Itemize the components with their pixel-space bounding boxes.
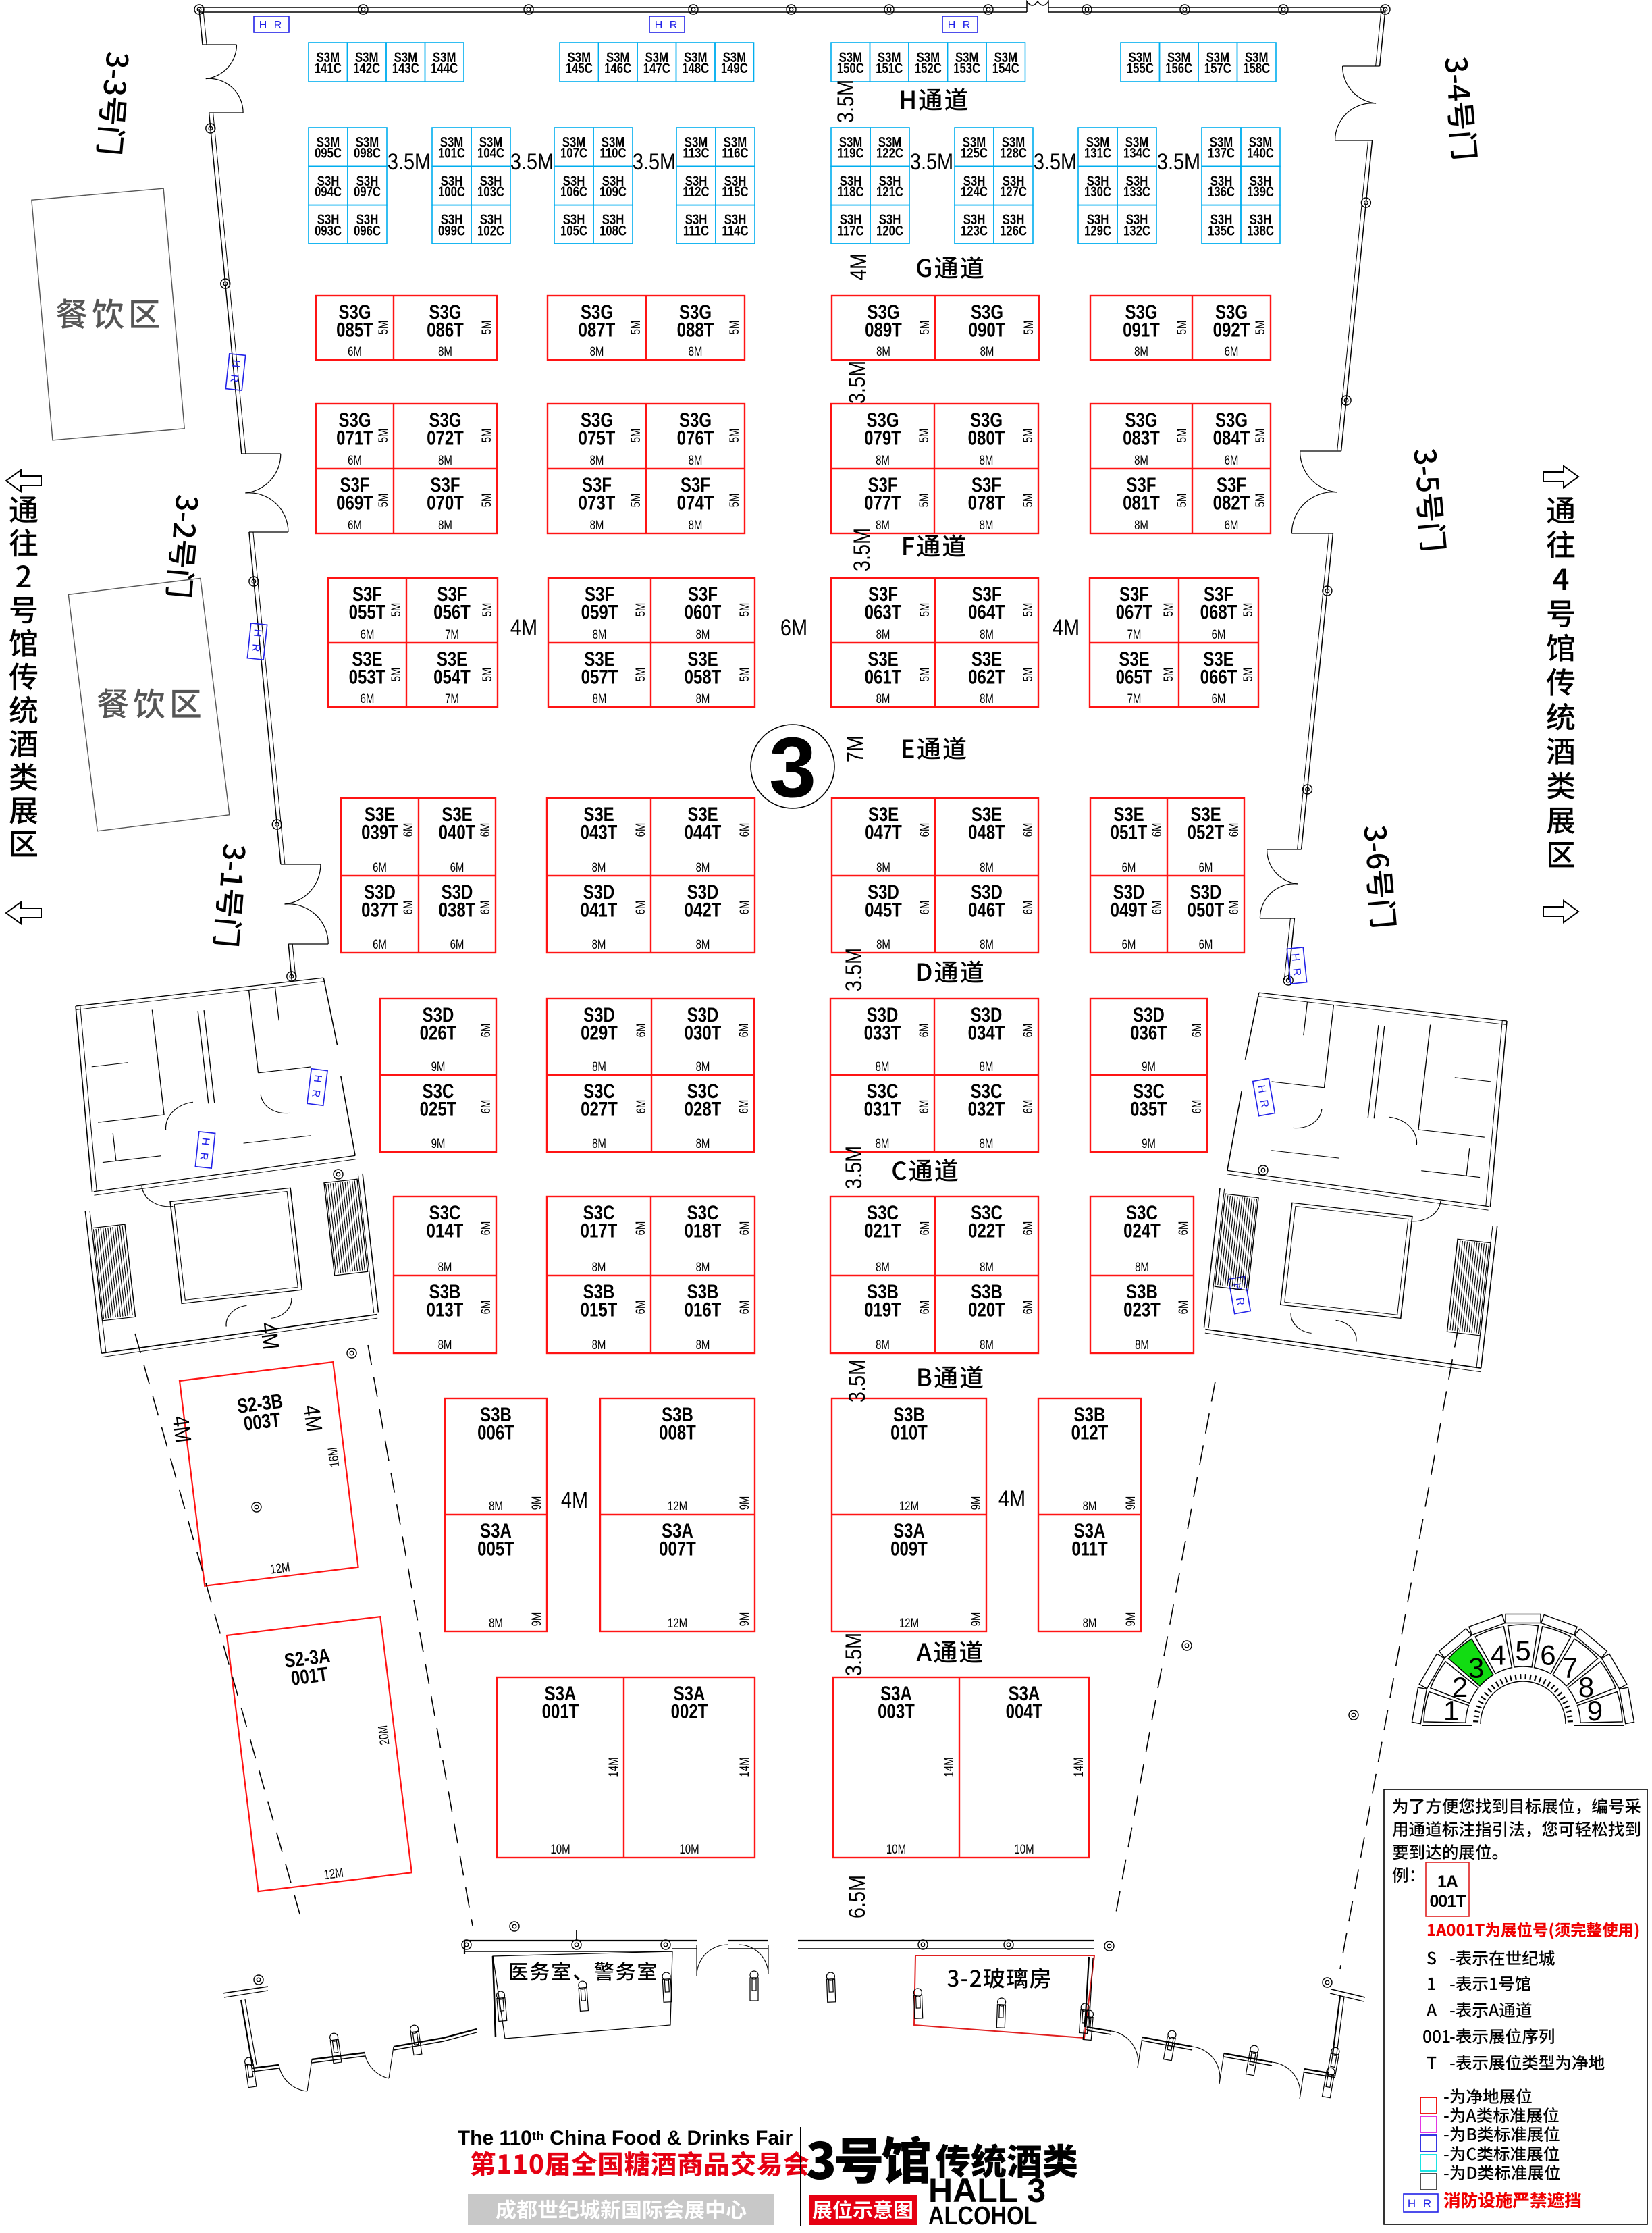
svg-text:003T: 003T	[242, 1408, 282, 1436]
svg-text:6M: 6M	[400, 901, 415, 915]
svg-text:3.5M: 3.5M	[841, 1146, 867, 1189]
svg-text:128C: 128C	[1000, 146, 1027, 161]
svg-text:149C: 149C	[721, 61, 748, 76]
svg-text:6M: 6M	[1020, 1024, 1035, 1038]
svg-text:116C: 116C	[722, 146, 748, 161]
svg-text:098C: 098C	[354, 146, 381, 161]
svg-text:014T: 014T	[427, 1219, 464, 1242]
svg-text:3.5M: 3.5M	[1157, 149, 1200, 175]
svg-text:7M: 7M	[445, 627, 459, 641]
svg-text:108C: 108C	[599, 223, 627, 238]
svg-text:109C: 109C	[599, 184, 627, 200]
svg-text:6M: 6M	[1226, 823, 1241, 837]
svg-text:10M: 10M	[550, 1841, 570, 1856]
svg-text:8M: 8M	[696, 1259, 710, 1274]
svg-text:5M: 5M	[726, 429, 741, 443]
svg-text:6M: 6M	[633, 1301, 647, 1315]
svg-text:066T: 066T	[1200, 665, 1237, 688]
svg-text:8M: 8M	[438, 452, 452, 467]
svg-text:5M: 5M	[375, 494, 390, 508]
svg-text:042T: 042T	[685, 898, 722, 921]
svg-text:5M: 5M	[726, 321, 741, 335]
svg-text:8M: 8M	[876, 452, 890, 467]
svg-text:102C: 102C	[477, 223, 504, 238]
svg-text:018T: 018T	[685, 1219, 722, 1242]
svg-text:088T: 088T	[677, 318, 714, 341]
svg-text:6M: 6M	[1020, 901, 1035, 915]
svg-text:6M: 6M	[633, 1100, 648, 1114]
svg-text:8M: 8M	[489, 1498, 503, 1513]
svg-text:074T: 074T	[677, 491, 714, 514]
svg-text:5M: 5M	[1020, 668, 1035, 682]
svg-text:6M: 6M	[361, 627, 375, 641]
svg-text:4M: 4M	[167, 1414, 196, 1444]
svg-text:14M: 14M	[737, 1757, 751, 1777]
svg-text:091T: 091T	[1123, 318, 1160, 341]
svg-text:5M: 5M	[1020, 494, 1035, 508]
svg-text:6M: 6M	[633, 1024, 648, 1038]
svg-text:The 110th China Food & Drinks: The 110th China Food & Drinks Fair	[458, 2127, 793, 2149]
svg-text:8M: 8M	[876, 937, 890, 951]
svg-text:105C: 105C	[560, 223, 587, 238]
svg-text:059T: 059T	[581, 600, 618, 623]
svg-text:060T: 060T	[685, 600, 722, 623]
svg-text:3.5M: 3.5M	[633, 149, 676, 175]
svg-text:082T: 082T	[1213, 491, 1250, 514]
svg-text:141C: 141C	[315, 61, 342, 76]
svg-text:6M: 6M	[1020, 1100, 1035, 1114]
svg-text:6: 6	[1540, 1639, 1555, 1671]
svg-text:061T: 061T	[865, 665, 902, 688]
svg-text:4M: 4M	[561, 1487, 588, 1513]
svg-text:5M: 5M	[917, 668, 932, 682]
svg-text:3.5M: 3.5M	[910, 149, 953, 175]
svg-text:7M: 7M	[1127, 627, 1142, 641]
svg-text:075T: 075T	[579, 426, 616, 449]
svg-text:6M: 6M	[1122, 937, 1136, 951]
svg-text:12M: 12M	[668, 1615, 687, 1630]
svg-text:6M: 6M	[737, 1221, 751, 1236]
svg-text:9M: 9M	[529, 1496, 543, 1510]
svg-text:6M: 6M	[1149, 823, 1164, 837]
svg-text:083T: 083T	[1123, 426, 1160, 449]
svg-text:033T: 033T	[864, 1021, 901, 1044]
svg-text:5M: 5M	[628, 494, 643, 508]
svg-text:072T: 072T	[427, 426, 464, 449]
svg-text:8M: 8M	[689, 452, 703, 467]
svg-text:7M: 7M	[1127, 691, 1142, 706]
svg-text:090T: 090T	[969, 318, 1006, 341]
svg-text:5M: 5M	[917, 603, 932, 617]
svg-text:6M: 6M	[1199, 860, 1213, 874]
svg-text:064T: 064T	[968, 600, 1005, 623]
svg-text:5M: 5M	[628, 321, 643, 335]
svg-text:9M: 9M	[1142, 1136, 1156, 1151]
svg-text:8M: 8M	[696, 937, 710, 951]
svg-text:077T: 077T	[864, 491, 901, 514]
svg-text:8M: 8M	[980, 937, 994, 951]
svg-text:039T: 039T	[361, 820, 398, 843]
svg-text:145C: 145C	[566, 61, 593, 76]
svg-text:040T: 040T	[439, 820, 476, 843]
svg-text:146C: 146C	[604, 61, 631, 76]
svg-text:003T: 003T	[878, 1700, 915, 1723]
svg-text:5M: 5M	[479, 494, 494, 508]
svg-text:143C: 143C	[392, 61, 419, 76]
svg-text:030T: 030T	[685, 1021, 722, 1044]
svg-text:6M: 6M	[1020, 1221, 1035, 1236]
svg-text:10M: 10M	[679, 1841, 699, 1856]
svg-text:6M: 6M	[478, 1301, 493, 1315]
svg-text:3.5M: 3.5M	[841, 1633, 867, 1676]
svg-text:6M: 6M	[1212, 627, 1226, 641]
svg-text:6M: 6M	[1226, 901, 1241, 915]
svg-text:147C: 147C	[643, 61, 670, 76]
svg-text:106C: 106C	[560, 184, 587, 200]
svg-text:9: 9	[1587, 1695, 1603, 1727]
svg-text:5M: 5M	[1252, 429, 1267, 443]
svg-text:127C: 127C	[1000, 184, 1027, 200]
svg-text:8M: 8M	[876, 1136, 890, 1151]
svg-text:096C: 096C	[354, 223, 381, 238]
svg-text:001T: 001T	[1430, 1892, 1466, 1911]
svg-text:6M: 6M	[737, 1301, 751, 1315]
svg-text:063T: 063T	[865, 600, 902, 623]
svg-text:144C: 144C	[431, 61, 458, 76]
svg-text:085T: 085T	[336, 318, 373, 341]
svg-text:009T: 009T	[890, 1537, 928, 1560]
svg-text:134C: 134C	[1123, 146, 1150, 161]
svg-text:123C: 123C	[961, 223, 988, 238]
svg-text:H R: H R	[1408, 2197, 1433, 2210]
svg-text:5M: 5M	[375, 429, 390, 443]
svg-text:031T: 031T	[864, 1097, 901, 1120]
svg-text:9M: 9M	[529, 1612, 543, 1627]
svg-text:6M: 6M	[1189, 1024, 1204, 1038]
svg-text:133C: 133C	[1123, 184, 1150, 200]
svg-text:047T: 047T	[865, 820, 902, 843]
svg-text:148C: 148C	[682, 61, 709, 76]
svg-text:019T: 019T	[864, 1298, 901, 1321]
svg-text:6M: 6M	[361, 691, 375, 706]
svg-text:5M: 5M	[1252, 494, 1267, 508]
svg-text:5M: 5M	[1174, 494, 1189, 508]
svg-text:028T: 028T	[685, 1097, 722, 1120]
svg-text:3.5M: 3.5M	[388, 149, 431, 175]
svg-text:8M: 8M	[590, 517, 604, 532]
svg-text:8M: 8M	[592, 1136, 606, 1151]
svg-text:8M: 8M	[1134, 452, 1148, 467]
svg-text:8M: 8M	[689, 517, 703, 532]
svg-text:8M: 8M	[696, 627, 710, 641]
svg-text:6M: 6M	[1175, 1301, 1190, 1315]
svg-text:5M: 5M	[633, 668, 647, 682]
svg-text:094C: 094C	[315, 184, 342, 200]
svg-text:6M: 6M	[1225, 344, 1239, 359]
svg-text:6M: 6M	[400, 823, 415, 837]
svg-text:8M: 8M	[980, 452, 994, 467]
svg-text:152C: 152C	[915, 61, 942, 76]
svg-text:130C: 130C	[1084, 184, 1111, 200]
svg-text:101C: 101C	[438, 146, 465, 161]
svg-text:12M: 12M	[323, 1865, 344, 1883]
svg-text:8M: 8M	[592, 937, 606, 951]
svg-text:126C: 126C	[1000, 223, 1027, 238]
svg-text:8M: 8M	[592, 1337, 606, 1352]
svg-text:6M: 6M	[348, 452, 362, 467]
svg-text:8M: 8M	[1135, 1259, 1149, 1274]
svg-text:8M: 8M	[980, 344, 994, 359]
svg-text:3.5M: 3.5M	[510, 149, 554, 175]
svg-text:3.5M: 3.5M	[844, 1359, 870, 1402]
svg-text:8M: 8M	[980, 1136, 994, 1151]
svg-text:006T: 006T	[477, 1421, 514, 1444]
svg-text:156C: 156C	[1165, 61, 1192, 76]
svg-text:8M: 8M	[1083, 1498, 1097, 1513]
svg-text:6.5M: 6.5M	[844, 1875, 870, 1918]
svg-text:1A: 1A	[1437, 1872, 1458, 1891]
svg-text:078T: 078T	[968, 491, 1005, 514]
svg-text:8M: 8M	[696, 860, 710, 874]
svg-text:8M: 8M	[876, 517, 890, 532]
svg-text:8M: 8M	[876, 627, 890, 641]
svg-text:107C: 107C	[560, 146, 587, 161]
svg-text:010T: 010T	[890, 1421, 928, 1444]
svg-text:002T: 002T	[671, 1700, 708, 1723]
svg-text:058T: 058T	[685, 665, 722, 688]
svg-text:5M: 5M	[1174, 321, 1189, 335]
svg-text:6M: 6M	[917, 901, 932, 915]
svg-text:3.5M: 3.5M	[841, 948, 867, 991]
svg-text:6M: 6M	[373, 937, 387, 951]
svg-text:6M: 6M	[736, 1024, 751, 1038]
svg-text:12M: 12M	[899, 1615, 919, 1630]
svg-text:8M: 8M	[438, 344, 452, 359]
svg-text:087T: 087T	[579, 318, 616, 341]
svg-text:150C: 150C	[837, 61, 864, 76]
svg-text:9M: 9M	[431, 1136, 446, 1151]
svg-text:5M: 5M	[1161, 603, 1175, 617]
svg-text:6M: 6M	[917, 1301, 932, 1315]
svg-text:017T: 017T	[581, 1219, 618, 1242]
svg-text:6M: 6M	[1122, 860, 1136, 874]
svg-text:065T: 065T	[1116, 665, 1153, 688]
svg-text:9M: 9M	[1123, 1612, 1138, 1627]
svg-text:124C: 124C	[961, 184, 988, 200]
svg-text:6M: 6M	[917, 1221, 932, 1236]
svg-text:099C: 099C	[438, 223, 465, 238]
svg-text:5M: 5M	[726, 494, 741, 508]
svg-text:073T: 073T	[579, 491, 616, 514]
svg-text:8M: 8M	[489, 1615, 503, 1630]
svg-text:6M: 6M	[917, 823, 932, 837]
svg-text:016T: 016T	[685, 1298, 722, 1321]
svg-text:8M: 8M	[696, 1059, 710, 1074]
svg-text:8M: 8M	[689, 344, 703, 359]
svg-text:6M: 6M	[477, 901, 492, 915]
svg-text:12M: 12M	[269, 1559, 291, 1577]
svg-text:8M: 8M	[592, 1259, 606, 1274]
svg-text:071T: 071T	[336, 426, 373, 449]
svg-text:8M: 8M	[1135, 1337, 1149, 1352]
svg-text:100C: 100C	[438, 184, 465, 200]
svg-text:9M: 9M	[431, 1059, 446, 1074]
svg-text:2: 2	[1452, 1671, 1468, 1703]
svg-text:049T: 049T	[1111, 898, 1148, 921]
svg-text:8M: 8M	[876, 1337, 890, 1352]
svg-text:4M: 4M	[298, 1403, 327, 1434]
svg-text:140C: 140C	[1247, 146, 1274, 161]
svg-text:14M: 14M	[1071, 1757, 1086, 1777]
svg-text:157C: 157C	[1204, 61, 1231, 76]
svg-text:8M: 8M	[980, 627, 994, 641]
svg-text:097C: 097C	[354, 184, 381, 200]
svg-text:8M: 8M	[876, 344, 890, 359]
svg-text:8M: 8M	[876, 860, 890, 874]
svg-text:089T: 089T	[865, 318, 902, 341]
svg-text:6M: 6M	[1212, 691, 1226, 706]
svg-text:050T: 050T	[1188, 898, 1225, 921]
svg-text:12M: 12M	[899, 1498, 919, 1513]
svg-text:007T: 007T	[659, 1537, 696, 1560]
svg-text:ALCOHOL: ALCOHOL	[928, 2201, 1037, 2230]
svg-text:6M: 6M	[1020, 1301, 1035, 1315]
svg-text:054T: 054T	[433, 665, 471, 688]
svg-text:001T: 001T	[290, 1662, 329, 1690]
svg-text:8M: 8M	[696, 691, 710, 706]
svg-text:062T: 062T	[968, 665, 1005, 688]
svg-text:9M: 9M	[737, 1496, 751, 1510]
svg-text:5M: 5M	[1020, 603, 1035, 617]
svg-text:6M: 6M	[478, 1221, 493, 1236]
svg-text:8M: 8M	[980, 691, 994, 706]
svg-text:5M: 5M	[917, 321, 932, 335]
svg-text:10M: 10M	[886, 1841, 906, 1856]
svg-text:142C: 142C	[353, 61, 380, 76]
svg-text:5M: 5M	[1240, 603, 1255, 617]
svg-text:086T: 086T	[427, 318, 464, 341]
svg-text:8M: 8M	[590, 344, 604, 359]
svg-text:154C: 154C	[992, 61, 1019, 76]
svg-text:056T: 056T	[433, 600, 471, 623]
svg-text:7: 7	[1562, 1652, 1578, 1683]
svg-text:046T: 046T	[968, 898, 1005, 921]
svg-text:8M: 8M	[438, 1259, 452, 1274]
svg-text:5M: 5M	[388, 603, 403, 617]
svg-text:12M: 12M	[668, 1498, 687, 1513]
svg-text:027T: 027T	[581, 1097, 618, 1120]
svg-text:135C: 135C	[1208, 223, 1235, 238]
svg-text:5M: 5M	[628, 429, 643, 443]
svg-text:5M: 5M	[1174, 429, 1189, 443]
svg-text:6M: 6M	[478, 1024, 493, 1038]
svg-text:044T: 044T	[685, 820, 722, 843]
svg-text:080T: 080T	[968, 426, 1005, 449]
svg-text:011T: 011T	[1071, 1537, 1108, 1560]
svg-text:7M: 7M	[842, 735, 868, 762]
svg-text:034T: 034T	[968, 1021, 1005, 1044]
svg-text:120C: 120C	[876, 223, 903, 238]
svg-text:14M: 14M	[941, 1757, 956, 1777]
svg-text:032T: 032T	[968, 1097, 1005, 1120]
svg-text:125C: 125C	[961, 146, 988, 161]
svg-text:029T: 029T	[581, 1021, 618, 1044]
svg-text:7M: 7M	[445, 691, 459, 706]
svg-text:8M: 8M	[980, 1337, 994, 1352]
svg-text:8M: 8M	[980, 860, 994, 874]
svg-text:8M: 8M	[593, 691, 607, 706]
svg-text:118C: 118C	[837, 184, 863, 200]
svg-text:079T: 079T	[864, 426, 901, 449]
svg-text:013T: 013T	[427, 1298, 464, 1321]
svg-text:8M: 8M	[1083, 1615, 1097, 1630]
svg-text:115C: 115C	[722, 184, 748, 200]
svg-text:153C: 153C	[953, 61, 980, 76]
svg-text:012T: 012T	[1071, 1421, 1109, 1444]
svg-text:6M: 6M	[780, 614, 807, 641]
svg-text:8M: 8M	[980, 1259, 994, 1274]
svg-text:3: 3	[769, 720, 816, 815]
svg-text:3.5M: 3.5M	[1034, 149, 1077, 175]
svg-text:021T: 021T	[864, 1219, 901, 1242]
svg-text:092T: 092T	[1213, 318, 1250, 341]
svg-text:5M: 5M	[1020, 429, 1035, 443]
svg-text:136C: 136C	[1208, 184, 1235, 200]
svg-text:6M: 6M	[737, 823, 751, 837]
svg-text:038T: 038T	[439, 898, 476, 921]
svg-text:067T: 067T	[1116, 600, 1153, 623]
svg-text:6M: 6M	[348, 344, 362, 359]
svg-text:131C: 131C	[1084, 146, 1111, 161]
svg-text:081T: 081T	[1123, 491, 1160, 514]
svg-text:6M: 6M	[633, 1221, 647, 1236]
svg-text:004T: 004T	[1006, 1700, 1043, 1723]
svg-text:9M: 9M	[1142, 1059, 1156, 1074]
svg-text:015T: 015T	[581, 1298, 618, 1321]
svg-text:001T: 001T	[542, 1700, 579, 1723]
svg-text:132C: 132C	[1123, 223, 1150, 238]
svg-text:H R: H R	[259, 20, 284, 31]
svg-text:5M: 5M	[737, 668, 751, 682]
svg-text:14M: 14M	[606, 1757, 620, 1777]
svg-text:008T: 008T	[659, 1421, 696, 1444]
svg-text:5M: 5M	[1021, 321, 1036, 335]
svg-text:5M: 5M	[916, 494, 931, 508]
svg-text:137C: 137C	[1208, 146, 1235, 161]
svg-text:111C: 111C	[683, 223, 709, 238]
svg-text:6M: 6M	[1149, 901, 1164, 915]
svg-text:9M: 9M	[1123, 1496, 1138, 1510]
svg-text:151C: 151C	[876, 61, 903, 76]
svg-text:9M: 9M	[968, 1496, 983, 1510]
svg-text:8M: 8M	[1134, 344, 1148, 359]
svg-text:8M: 8M	[1134, 517, 1148, 532]
svg-text:051T: 051T	[1111, 820, 1148, 843]
svg-text:5M: 5M	[1240, 668, 1255, 682]
svg-text:037T: 037T	[361, 898, 398, 921]
svg-text:16M: 16M	[325, 1446, 342, 1468]
svg-text:4M: 4M	[998, 1486, 1025, 1512]
svg-text:6M: 6M	[633, 823, 647, 837]
svg-text:119C: 119C	[837, 146, 863, 161]
svg-text:036T: 036T	[1130, 1021, 1167, 1044]
svg-text:6M: 6M	[1225, 452, 1239, 467]
svg-text:5M: 5M	[1252, 321, 1267, 335]
svg-text:023T: 023T	[1123, 1298, 1161, 1321]
svg-text:3.5M: 3.5M	[849, 528, 875, 571]
svg-text:8M: 8M	[438, 517, 452, 532]
svg-text:093C: 093C	[315, 223, 342, 238]
